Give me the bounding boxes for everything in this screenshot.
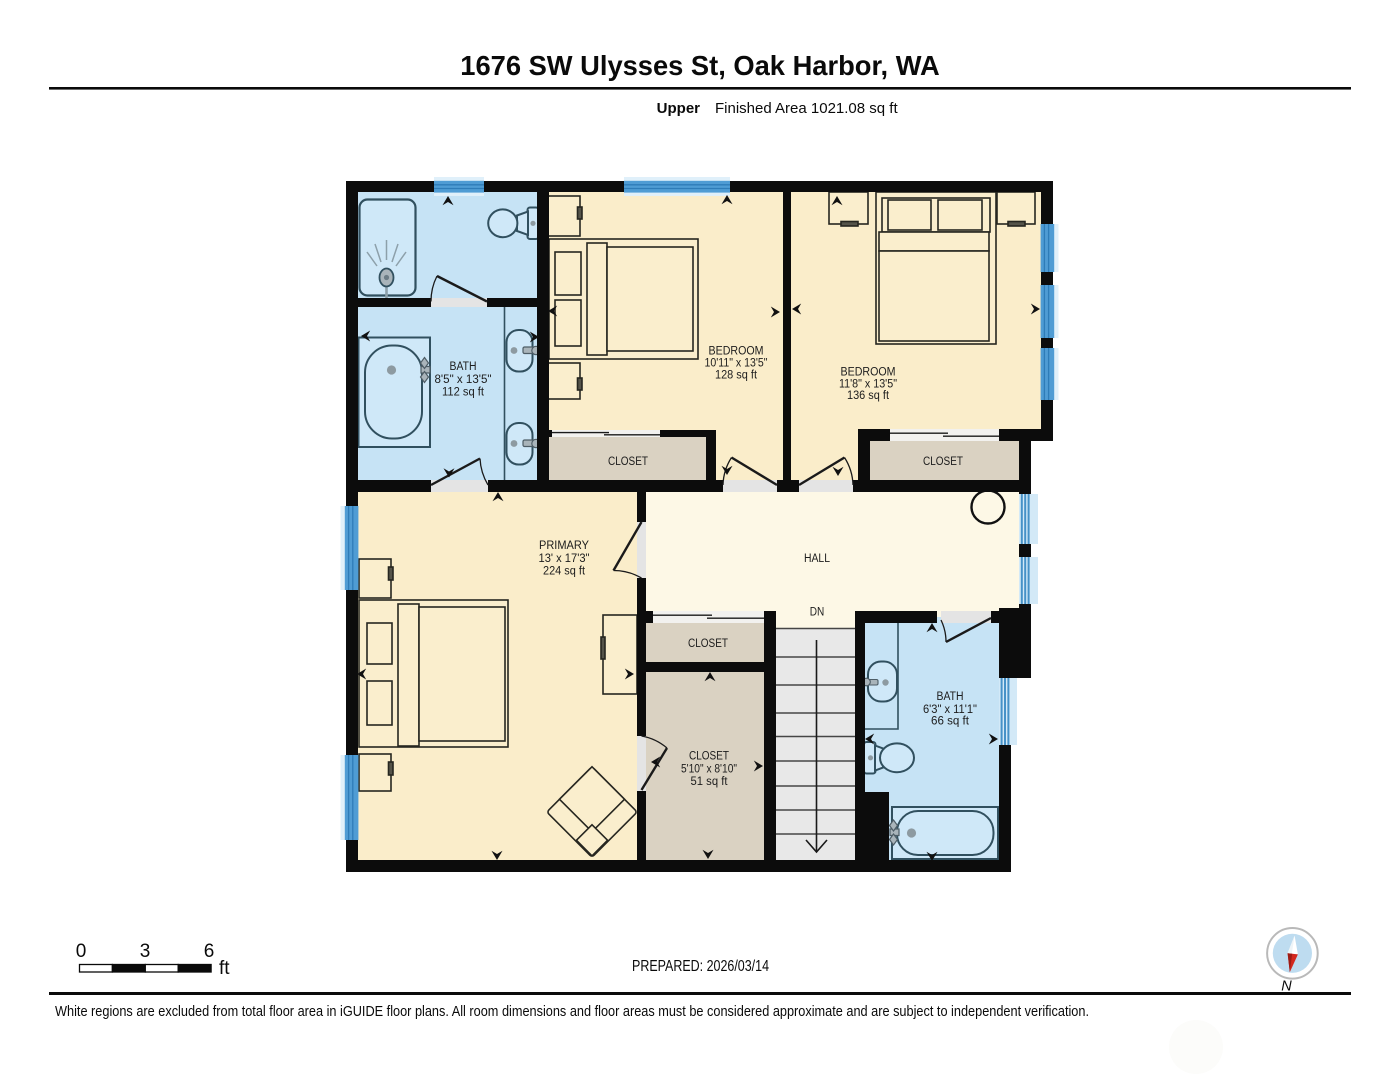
svg-text:Upper: Upper	[657, 100, 701, 117]
svg-text:ft: ft	[219, 958, 230, 979]
svg-text:CLOSET: CLOSET	[689, 749, 729, 763]
svg-text:0: 0	[76, 941, 87, 962]
svg-text:CLOSET: CLOSET	[608, 454, 648, 468]
svg-text:BATH: BATH	[937, 689, 964, 703]
svg-text:112 sq ft: 112 sq ft	[442, 385, 485, 399]
svg-text:66 sq ft: 66 sq ft	[931, 714, 970, 728]
svg-text:Finished Area 1021.08 sq ft: Finished Area 1021.08 sq ft	[715, 100, 898, 117]
svg-text:PREPARED: 2026/03/14: PREPARED: 2026/03/14	[632, 958, 769, 975]
svg-text:3: 3	[140, 941, 151, 962]
svg-text:224 sq ft: 224 sq ft	[543, 564, 586, 578]
svg-text:1676 SW Ulysses St, Oak Harbor: 1676 SW Ulysses St, Oak Harbor, WA	[460, 50, 939, 81]
svg-text:HALL: HALL	[804, 551, 830, 565]
svg-text:136 sq ft: 136 sq ft	[847, 388, 890, 402]
svg-text:PRIMARY: PRIMARY	[539, 538, 589, 552]
svg-text:51 sq ft: 51 sq ft	[691, 774, 729, 788]
svg-text:White regions are excluded fro: White regions are excluded from total fl…	[55, 1003, 1089, 1020]
svg-text:BATH: BATH	[450, 359, 477, 373]
svg-text:6: 6	[204, 941, 215, 962]
svg-text:128 sq ft: 128 sq ft	[715, 368, 758, 382]
svg-text:CLOSET: CLOSET	[923, 454, 963, 468]
svg-text:DN: DN	[810, 605, 825, 619]
svg-text:CLOSET: CLOSET	[688, 636, 728, 650]
